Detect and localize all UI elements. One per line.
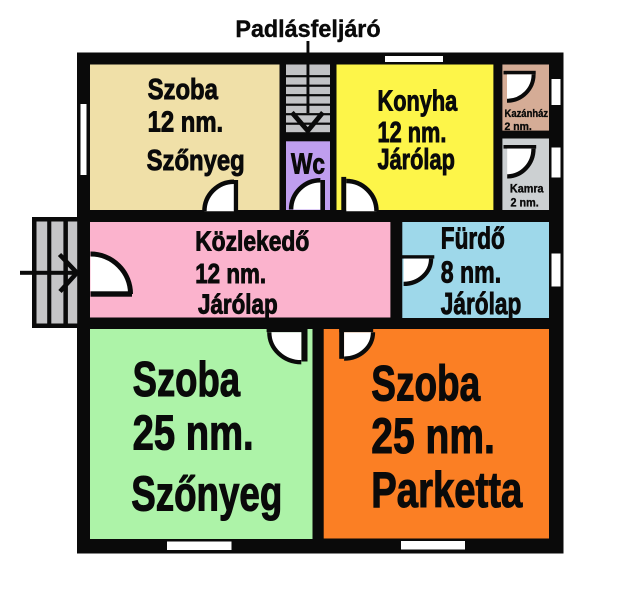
svg-text:Járólap: Járólap [378,144,455,176]
svg-text:8 nm.: 8 nm. [441,254,501,289]
svg-text:12 nm.: 12 nm. [148,105,224,138]
svg-text:25 nm.: 25 nm. [371,407,495,464]
svg-text:Szőnyeg: Szőnyeg [147,144,245,177]
svg-text:2 nm.: 2 nm. [511,197,539,209]
svg-text:Szőnyeg: Szőnyeg [131,467,282,521]
svg-text:Járólap: Járólap [198,289,278,320]
svg-text:Kamra: Kamra [510,183,544,195]
svg-text:12 nm.: 12 nm. [195,259,266,290]
svg-text:Parketta: Parketta [371,463,523,518]
svg-text:Fürdő: Fürdő [441,220,505,255]
svg-text:2 nm.: 2 nm. [505,121,532,133]
svg-text:Közlekedő: Közlekedő [195,226,309,257]
svg-text:Szoba: Szoba [148,73,218,106]
svg-text:Padlásfeljáró: Padlásfeljáró [235,17,380,43]
svg-text:25 nm.: 25 nm. [133,406,254,461]
svg-text:Kazánház: Kazánház [505,108,549,120]
svg-text:Szoba: Szoba [371,356,480,412]
svg-text:Szoba: Szoba [133,353,241,407]
svg-text:Járólap: Járólap [441,285,521,320]
svg-text:Konyha: Konyha [378,86,458,118]
svg-text:Wc: Wc [291,147,325,180]
